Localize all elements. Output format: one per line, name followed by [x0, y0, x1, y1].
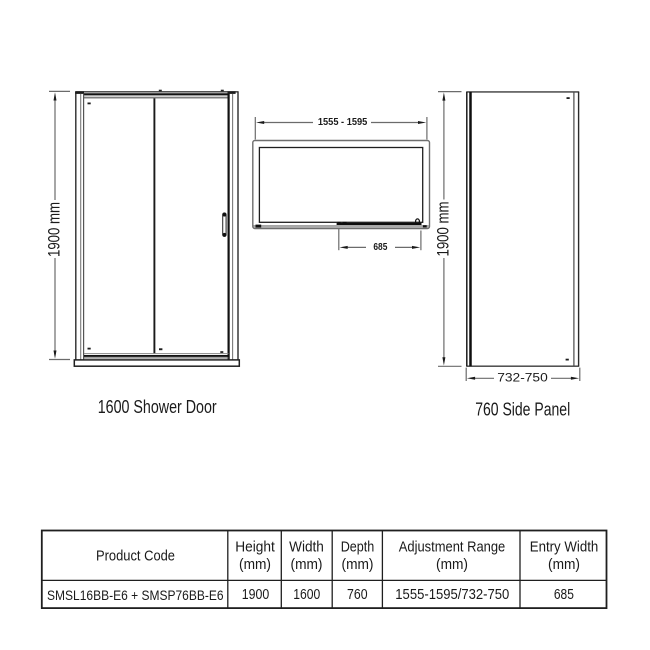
svg-text:Entry Width: Entry Width [530, 539, 599, 555]
svg-text:Width: Width [289, 539, 324, 555]
svg-text:(mm): (mm) [342, 557, 374, 573]
svg-text:1555-1595/732-750: 1555-1595/732-750 [395, 587, 509, 603]
svg-text:Product Code: Product Code [96, 549, 175, 565]
svg-text:732-750: 732-750 [497, 373, 548, 385]
svg-text:(mm): (mm) [291, 557, 323, 573]
svg-text:1900: 1900 [242, 587, 270, 603]
svg-text:1600: 1600 [293, 587, 320, 603]
svg-text:SMSL16BB-E6 + SMSP76BB-E6: SMSL16BB-E6 + SMSP76BB-E6 [47, 587, 224, 603]
svg-text:(mm): (mm) [239, 557, 271, 573]
svg-text:685: 685 [554, 587, 574, 603]
svg-text:1555 - 1595: 1555 - 1595 [318, 117, 368, 128]
svg-text:760 Side Panel: 760 Side Panel [475, 399, 570, 420]
svg-text:1900 mm: 1900 mm [434, 202, 452, 257]
svg-text:1600 Shower Door: 1600 Shower Door [98, 396, 217, 417]
svg-text:760: 760 [347, 587, 368, 603]
svg-text:685: 685 [373, 242, 387, 253]
svg-text:Depth: Depth [341, 539, 375, 555]
svg-text:(mm): (mm) [548, 557, 580, 573]
svg-text:Height: Height [235, 539, 275, 555]
svg-text:(mm): (mm) [436, 557, 468, 573]
svg-text:1900 mm: 1900 mm [46, 202, 64, 257]
svg-text:Adjustment Range: Adjustment Range [399, 539, 506, 555]
